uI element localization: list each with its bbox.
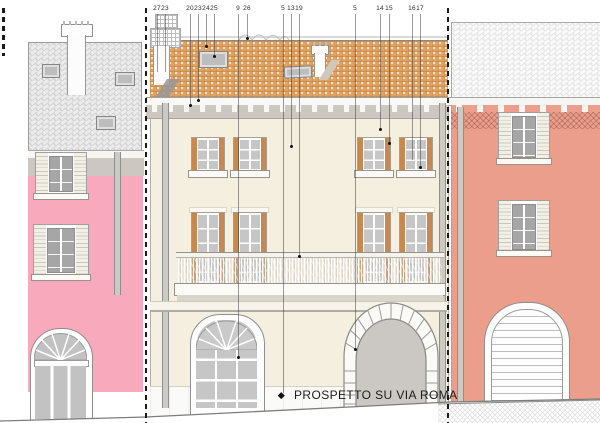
annotation-label: 16 xyxy=(408,5,416,12)
leader-dot xyxy=(205,45,208,48)
right-lower-window xyxy=(498,200,550,254)
elevation-drawing: PROSPETTO SU VIA ROMA 27 23 20 23 24 25 … xyxy=(0,0,600,423)
downspout-pipe xyxy=(114,152,121,295)
annotation-label: 24 xyxy=(202,5,210,12)
leader-dot xyxy=(237,356,240,359)
window-sill xyxy=(496,250,552,257)
boundary-dashed-line-left xyxy=(145,8,148,423)
annotation-label: 20 xyxy=(186,5,194,12)
balcony-railing xyxy=(178,256,442,283)
window-sill xyxy=(396,170,436,178)
drawing-title: PROSPETTO SU VIA ROMA xyxy=(294,388,458,402)
left-roof-skylight xyxy=(42,64,60,78)
dentil-molding xyxy=(152,105,444,112)
annotation-label: 9 xyxy=(236,5,240,12)
left-roof-skylight xyxy=(96,116,116,130)
annotation-label: 15 xyxy=(385,5,393,12)
annotation-label: 5 xyxy=(281,5,285,12)
roof-skylight xyxy=(284,65,313,78)
leader-line xyxy=(291,14,292,146)
annotation-label: 13 xyxy=(287,5,295,12)
leader-line xyxy=(380,14,381,129)
leader-dot xyxy=(197,99,200,102)
right-upper-window xyxy=(498,112,550,162)
leader-line xyxy=(299,14,300,256)
left-upper-window xyxy=(35,152,87,196)
right-building-roof xyxy=(451,22,600,99)
leader-line xyxy=(412,14,413,160)
second-floor-window xyxy=(357,137,391,172)
leader-line xyxy=(157,14,158,72)
leader-dot xyxy=(189,104,192,107)
leader-dot xyxy=(354,348,357,351)
left-roof-skylight xyxy=(115,72,135,86)
leader-line xyxy=(247,14,248,38)
annotation-label: 27 xyxy=(153,5,161,12)
leader-line xyxy=(198,14,199,100)
left-lower-window xyxy=(33,224,89,277)
boundary-dashed-line-right xyxy=(447,8,450,423)
leader-dot xyxy=(290,145,293,148)
leader-dot xyxy=(379,128,382,131)
window-sill xyxy=(33,193,89,200)
leader-dot xyxy=(213,55,216,58)
leader-dot xyxy=(298,255,301,258)
leader-line xyxy=(283,14,284,393)
window-sill xyxy=(31,274,91,281)
downspout-pipe xyxy=(162,103,169,408)
leader-line xyxy=(206,14,207,46)
annotation-label: 5 xyxy=(353,5,357,12)
annotation-label: 25 xyxy=(210,5,218,12)
fanlight xyxy=(34,332,87,360)
garage-rolling-shutter xyxy=(491,309,563,401)
left-chimney xyxy=(67,35,86,95)
annotation-label: 26 xyxy=(243,5,251,12)
leader-line xyxy=(355,14,356,349)
leader-line xyxy=(214,14,215,56)
leader-dot xyxy=(419,166,422,169)
leader-line xyxy=(190,14,191,105)
boundary-dashed-line-edge xyxy=(2,8,5,56)
window-sill xyxy=(354,170,394,178)
downspout-pipe xyxy=(457,107,464,402)
window-sill xyxy=(188,170,228,178)
annotation-label: 23 xyxy=(194,5,202,12)
leader-line xyxy=(165,14,166,72)
annotation-label: 19 xyxy=(295,5,303,12)
window-sill xyxy=(230,170,270,178)
leader-line xyxy=(420,14,421,167)
window-sill xyxy=(496,158,552,165)
second-floor-window xyxy=(191,137,225,172)
leader-line xyxy=(238,14,239,357)
annotation-label: 14 xyxy=(376,5,384,12)
leader-line xyxy=(389,14,390,143)
dentil-molding xyxy=(456,105,600,112)
door-panels xyxy=(35,366,86,419)
second-floor-window xyxy=(399,137,433,172)
annotation-label: 23 xyxy=(161,5,169,12)
annotation-label: 17 xyxy=(416,5,424,12)
fanlight xyxy=(196,320,257,350)
leader-dot xyxy=(388,142,391,145)
leader-dot xyxy=(246,37,249,40)
